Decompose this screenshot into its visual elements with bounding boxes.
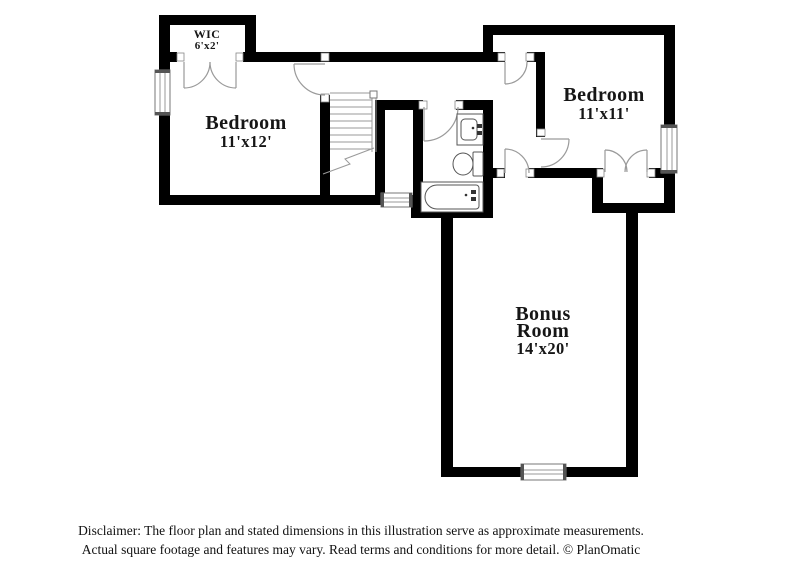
room-label-bedroom-left: Bedroom 11'x12' bbox=[156, 114, 336, 150]
room-dims: 6'x2' bbox=[162, 40, 252, 52]
wall-bedroom-left-bottom bbox=[159, 195, 381, 205]
room-name: Bedroom bbox=[156, 114, 336, 133]
room-label-bonus-room: Bonus Room 14'x20' bbox=[453, 306, 633, 357]
door-bathroom bbox=[424, 107, 458, 141]
room-dims: 11'x11' bbox=[514, 105, 694, 122]
room-name: Bedroom bbox=[514, 86, 694, 105]
wall-wic-bottom-right bbox=[243, 52, 256, 62]
sink-vanity-icon bbox=[457, 114, 483, 145]
window-bonus bbox=[521, 464, 566, 480]
disclaimer-text: Disclaimer: The floor plan and stated di… bbox=[22, 521, 700, 559]
door-closet-double bbox=[605, 150, 647, 172]
wall-bonus-bottom-right bbox=[566, 467, 638, 477]
door-bonus-room bbox=[505, 149, 529, 173]
room-name-line2: Room bbox=[453, 323, 633, 340]
door-wic-double bbox=[184, 62, 236, 88]
wall-closet-bottom bbox=[592, 203, 675, 213]
wall-bedroom-right-top bbox=[483, 25, 675, 35]
room-name: WIC bbox=[162, 28, 252, 40]
wall-bonus-left bbox=[441, 218, 453, 477]
window-bedroom-left-bottom bbox=[381, 193, 412, 207]
wall-wic-bottom-left bbox=[159, 52, 177, 62]
window-bedroom-left bbox=[155, 70, 170, 115]
room-label-bedroom-right: Bedroom 11'x11' bbox=[514, 86, 694, 122]
stairs-break-line bbox=[323, 148, 374, 174]
bathroom-fixtures bbox=[421, 114, 483, 212]
wall-wic-top bbox=[159, 15, 256, 25]
window-bedroom-right bbox=[661, 125, 677, 173]
wall-bedroom-right-bottom bbox=[528, 168, 592, 178]
door-bedroom-right-side bbox=[541, 139, 569, 167]
wall-bonus-bottom-left bbox=[441, 467, 521, 477]
wall-connector bbox=[483, 25, 493, 52]
floor-plan-canvas: WIC 6'x2' Bedroom 11'x12' Bedroom 11'x11… bbox=[0, 0, 800, 582]
disclaimer-line-2: Actual square footage and features may v… bbox=[22, 540, 700, 559]
bathtub-icon bbox=[421, 182, 483, 212]
wall-bath-right bbox=[483, 100, 493, 218]
door-bedroom-right-top bbox=[505, 62, 527, 84]
wall-hall-top bbox=[256, 52, 493, 62]
room-dims: 14'x20' bbox=[453, 340, 633, 357]
room-dims: 11'x12' bbox=[156, 133, 336, 150]
toilet-icon bbox=[453, 152, 483, 176]
disclaimer-line-1: Disclaimer: The floor plan and stated di… bbox=[22, 521, 700, 540]
room-label-wic: WIC 6'x2' bbox=[162, 28, 252, 52]
door-bedroom-left bbox=[294, 64, 325, 95]
